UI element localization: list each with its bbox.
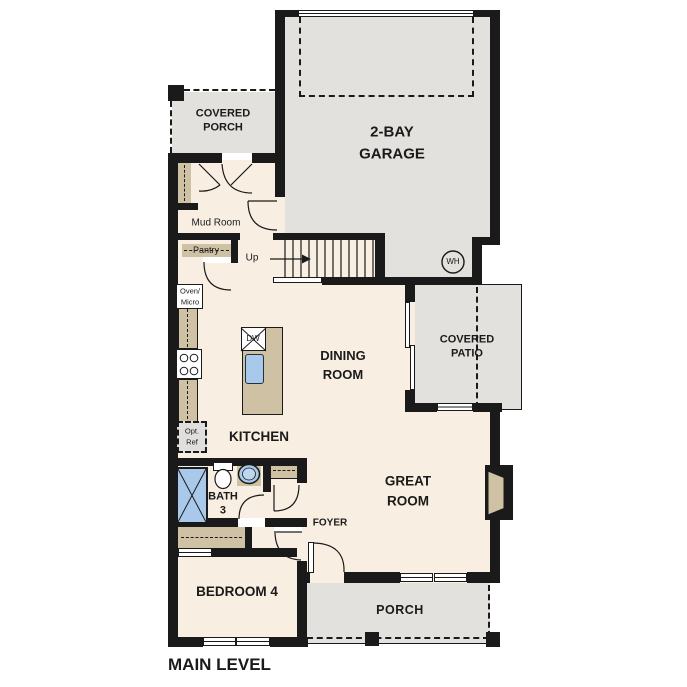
wall-bath-closet-divider [263, 458, 271, 492]
hallcloset-shelf-dash [273, 470, 295, 471]
wall-mudcloset-bottom [168, 203, 198, 210]
wall-stairs-top [273, 233, 385, 240]
foyer-label: FOYER [313, 517, 347, 530]
garage-label: 2-BAY GARAGE [359, 121, 425, 165]
exterior-notch [482, 245, 500, 284]
garage-door-window [298, 10, 474, 17]
patio-slider-panel-1 [405, 302, 410, 348]
wall-great-south-2 [344, 572, 400, 583]
wall-garage-bottom [322, 277, 482, 285]
covered-patio-label: COVERED PATIO [440, 333, 494, 362]
wall-garage-top-1 [275, 10, 298, 17]
wall-bath-top [168, 458, 307, 466]
shower [176, 467, 208, 524]
porch-edge-dash-bottom [307, 637, 489, 639]
covered-porch-roof-dash-top [184, 89, 275, 91]
bedroom-closet-bypass-door [178, 548, 212, 557]
up-label: Up [246, 252, 259, 265]
counter-dash-lower [187, 381, 188, 419]
toilet-tank [213, 462, 233, 471]
wall-exterior-bottom-1 [168, 637, 203, 647]
porch-edge-dash-right [488, 585, 490, 637]
island-sink [245, 354, 264, 384]
wall-mudroom-bottom [168, 233, 240, 240]
plan-title: MAIN LEVEL [168, 654, 271, 676]
wall-garage-right [490, 10, 500, 237]
wall-bath-south-2 [265, 518, 307, 527]
porch-post-left [365, 632, 379, 646]
wall-bedroom-north [212, 548, 297, 557]
great-room-window-2 [434, 573, 467, 582]
oven-micro-label: Oven/ Micro [180, 287, 200, 308]
pantry-label: Pantry [193, 245, 219, 257]
wall-mudroom-top-1 [168, 153, 222, 163]
wall-exterior-left [168, 153, 178, 647]
wall-exterior-bottom-2 [270, 637, 308, 647]
wall-patio-south-1 [405, 403, 437, 412]
counter-dash-upper [187, 309, 188, 347]
floor-plan: COVERED PORCH 2-BAY GARAGE Mud Room Pant… [0, 0, 687, 687]
wall-great-south-3 [467, 572, 500, 583]
cooktop [176, 349, 202, 379]
fireplace [485, 465, 513, 520]
wall-hall-upper [297, 458, 307, 483]
porch-label: PORCH [376, 602, 424, 618]
great-room-window-1 [400, 573, 433, 582]
bedroom-4-label: BEDROOM 4 [196, 583, 278, 601]
kitchen-counter-upper [178, 306, 198, 349]
great-room-label: GREAT ROOM [385, 471, 431, 510]
opt-ref-label: Opt. Ref [185, 427, 199, 448]
patio-slider-panel-2 [410, 345, 415, 390]
wall-dining-east-upper [405, 283, 415, 302]
bath-3-label: BATH 3 [208, 490, 238, 519]
wall-garage-left [275, 10, 285, 197]
mud-room-label: Mud Room [192, 217, 241, 230]
wall-bedroom-right [297, 561, 307, 647]
bath-door-leaf [238, 518, 265, 527]
bedroom-door-leaf [274, 527, 302, 533]
front-door-leaf [308, 542, 314, 573]
bedroom-window-2 [236, 637, 270, 646]
wall-pantry-right [231, 240, 238, 263]
kitchen-label: KITCHEN [229, 428, 289, 446]
dishwasher-label: DW [246, 334, 259, 344]
pantry-door-gap [203, 257, 231, 263]
wall-garage-jog [472, 237, 500, 245]
covered-porch-label: COVERED PORCH [196, 107, 250, 136]
covered-porch-roof-dash-left [170, 101, 172, 153]
wall-porch-corner [168, 85, 184, 101]
mudcloset-rod-dash [184, 165, 185, 201]
wall-bedcloset-right [245, 527, 252, 548]
stairs-rail [273, 277, 322, 283]
dining-room-label: DINING ROOM [320, 347, 366, 385]
water-heater-label: WH [446, 257, 459, 267]
patio-window [437, 403, 473, 411]
wall-mudroom-top-2 [252, 153, 275, 163]
wall-stairs-right [375, 233, 385, 283]
garage-door-clearance-dash [299, 17, 474, 97]
bedcloset-rod-dash [181, 537, 242, 538]
bedroom-window-1 [203, 637, 236, 646]
kitchen-counter-lower [178, 379, 198, 422]
